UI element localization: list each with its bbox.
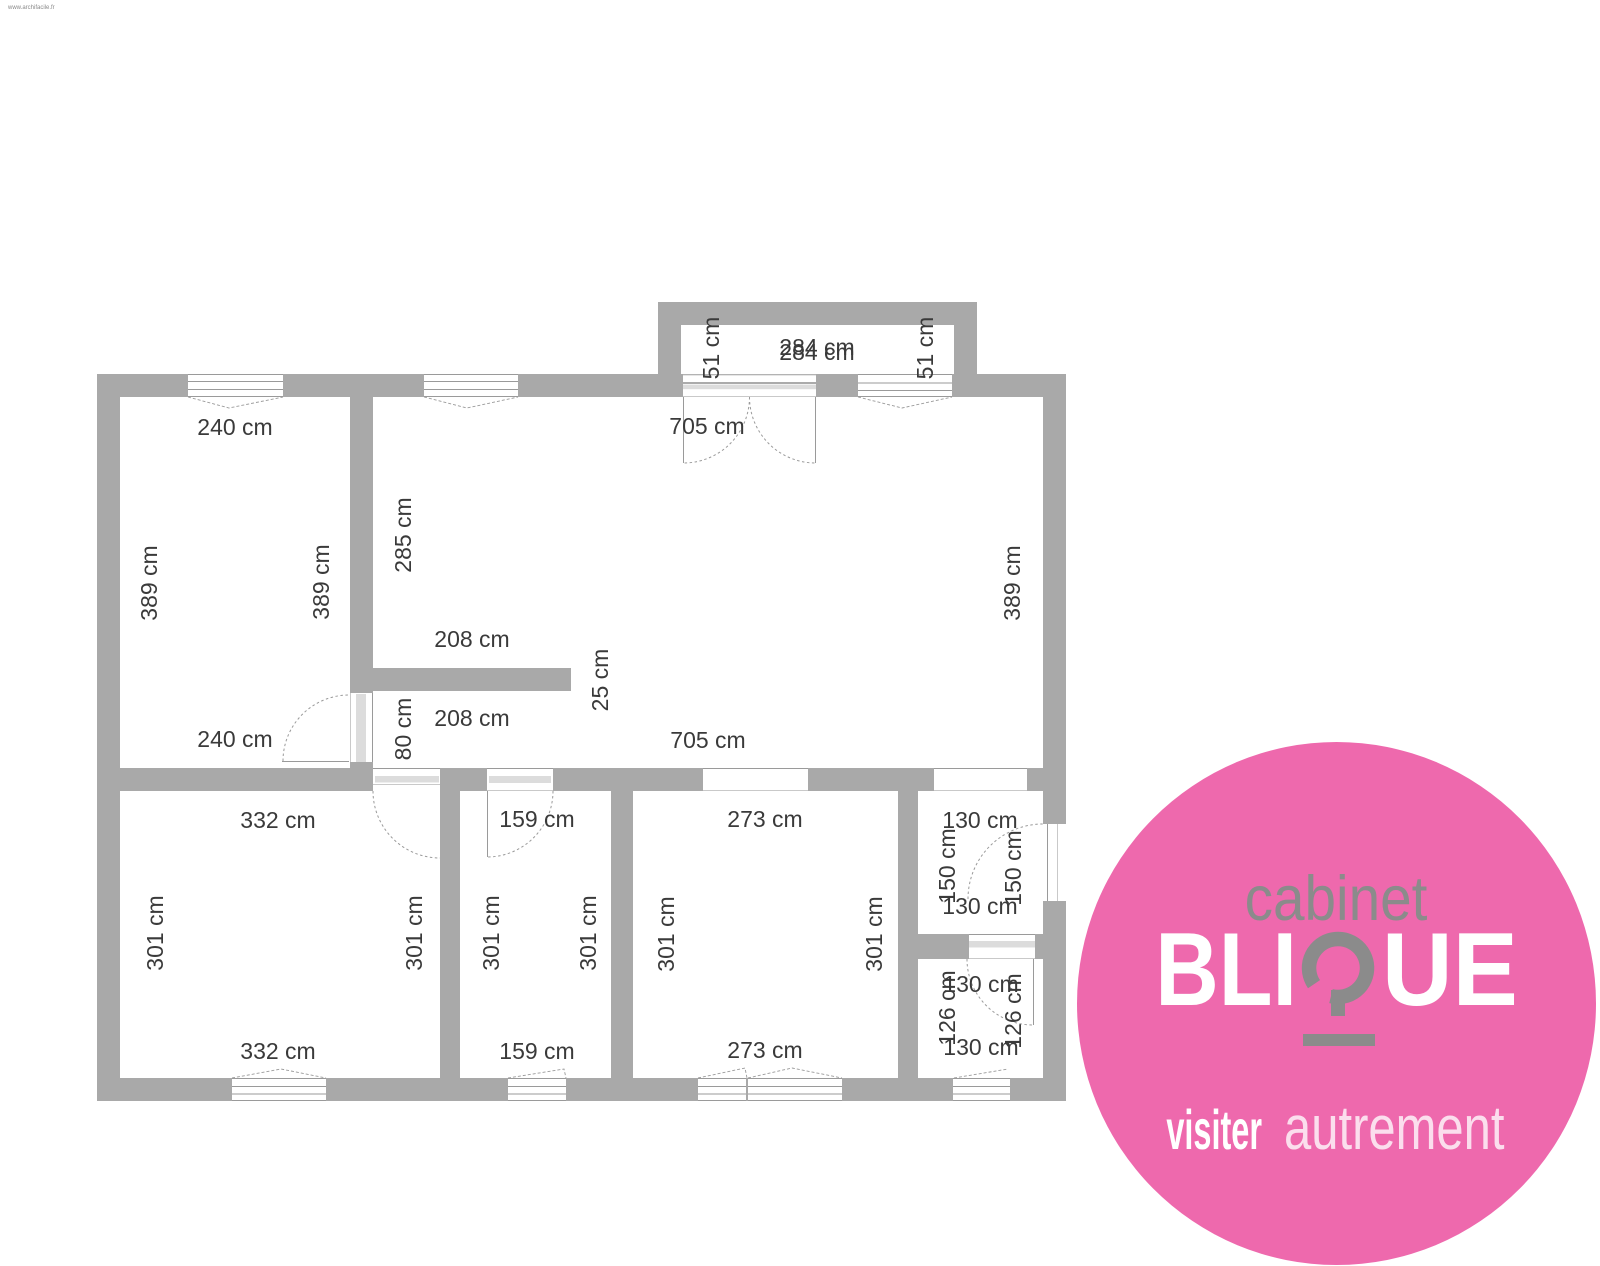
svg-text:389 cm: 389 cm bbox=[999, 545, 1025, 620]
svg-text:208 cm: 208 cm bbox=[434, 705, 509, 731]
svg-text:159 cm: 159 cm bbox=[499, 806, 574, 832]
svg-text:301 cm: 301 cm bbox=[478, 895, 504, 970]
svg-text:301 cm: 301 cm bbox=[653, 896, 679, 971]
svg-text:273 cm: 273 cm bbox=[727, 806, 802, 832]
svg-text:51 cm: 51 cm bbox=[912, 317, 938, 380]
svg-text:240 cm: 240 cm bbox=[197, 414, 272, 440]
svg-text:301 cm: 301 cm bbox=[861, 896, 887, 971]
svg-text:285 cm: 285 cm bbox=[390, 497, 416, 572]
svg-text:301 cm: 301 cm bbox=[142, 895, 168, 970]
svg-text:301 cm: 301 cm bbox=[575, 895, 601, 970]
svg-text:705 cm: 705 cm bbox=[670, 727, 745, 753]
svg-text:80 cm: 80 cm bbox=[390, 698, 416, 761]
svg-text:159 cm: 159 cm bbox=[499, 1038, 574, 1064]
svg-text:332 cm: 332 cm bbox=[240, 807, 315, 833]
svg-text:208 cm: 208 cm bbox=[434, 626, 509, 652]
svg-text:126 cm: 126 cm bbox=[934, 970, 960, 1045]
svg-text:389 cm: 389 cm bbox=[136, 545, 162, 620]
svg-text:705 cm: 705 cm bbox=[669, 413, 744, 439]
svg-text:visiter: visiter bbox=[1166, 1099, 1262, 1161]
svg-text:273 cm: 273 cm bbox=[727, 1037, 802, 1063]
svg-text:389 cm: 389 cm bbox=[308, 544, 334, 619]
svg-text:240 cm: 240 cm bbox=[197, 726, 272, 752]
svg-text:150 cm: 150 cm bbox=[1000, 830, 1026, 905]
svg-text:284 cm: 284 cm bbox=[779, 339, 854, 365]
svg-text:301 cm: 301 cm bbox=[401, 895, 427, 970]
svg-text:www.archifacile.fr: www.archifacile.fr bbox=[7, 5, 55, 11]
svg-text:51 cm: 51 cm bbox=[698, 317, 724, 380]
svg-text:UE: UE bbox=[1382, 912, 1518, 1027]
svg-text:BLI: BLI bbox=[1155, 912, 1297, 1028]
svg-text:126 cm: 126 cm bbox=[1000, 973, 1026, 1048]
svg-text:autrement: autrement bbox=[1284, 1092, 1505, 1162]
svg-text:25 cm: 25 cm bbox=[587, 649, 613, 712]
svg-text:150 cm: 150 cm bbox=[934, 828, 960, 903]
svg-text:332 cm: 332 cm bbox=[240, 1038, 315, 1064]
